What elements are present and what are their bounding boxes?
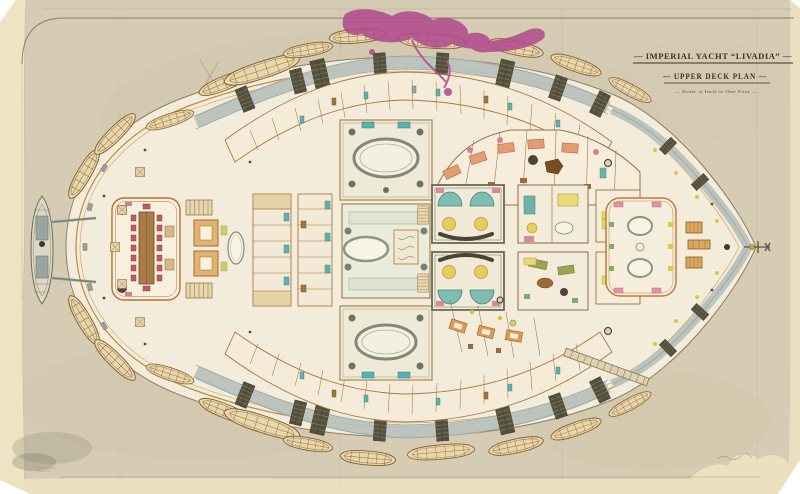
deck-hatch [136,318,145,327]
skylight-oval [628,259,652,277]
bow-deckhouse [606,198,676,296]
settee [349,212,423,224]
ottoman [475,266,488,279]
bench [221,226,227,235]
stair-hatch [418,206,429,224]
machinery-annex [394,230,418,264]
ottoman [443,266,456,279]
table-round [528,155,538,165]
launch-cabin [36,216,48,240]
ottoman [443,218,456,231]
skylight-room-starboard [340,306,432,380]
plan-subtitle: — UPPER DECK PLAN — [662,72,767,81]
cabin-column-b [298,194,332,306]
skylight-oval [344,237,388,261]
skylight-room-centre [342,204,430,298]
side-table [165,259,174,270]
skylight-room-port [340,120,432,200]
boudoir-port [518,185,588,243]
skylight-oval [354,139,418,177]
launch-cabin [36,256,48,278]
deck-hatch [118,206,127,215]
stair-hatch [186,200,212,215]
scanned-plan-sheet: — IMPERIAL YACHT “LIVADIA” — — UPPER DEC… [0,0,800,494]
stair-hatch [418,274,429,292]
launch-funnel [39,241,45,247]
canopy-bedroom-port [432,185,504,243]
boudoir-starboard [518,252,588,310]
paper-edge-bottom [0,478,800,494]
bench [221,262,227,271]
plan-title: — IMPERIAL YACHT “LIVADIA” — [633,51,792,61]
settee [349,278,423,290]
plan-scale-note: — Scale ¼ Inch to One Foot — [673,89,759,94]
stair-hatch [186,283,212,298]
ottoman [475,218,488,231]
canopy-bedroom-starboard [432,252,504,310]
skylight-oval [628,217,652,235]
deck-hatch [136,168,145,177]
cabin-column-a [253,194,291,306]
plan-canvas: — IMPERIAL YACHT “LIVADIA” — — UPPER DEC… [0,0,800,494]
sofa [125,292,132,296]
side-table [165,226,174,237]
deck-hatch [111,243,120,252]
deck-hatch [118,280,127,289]
